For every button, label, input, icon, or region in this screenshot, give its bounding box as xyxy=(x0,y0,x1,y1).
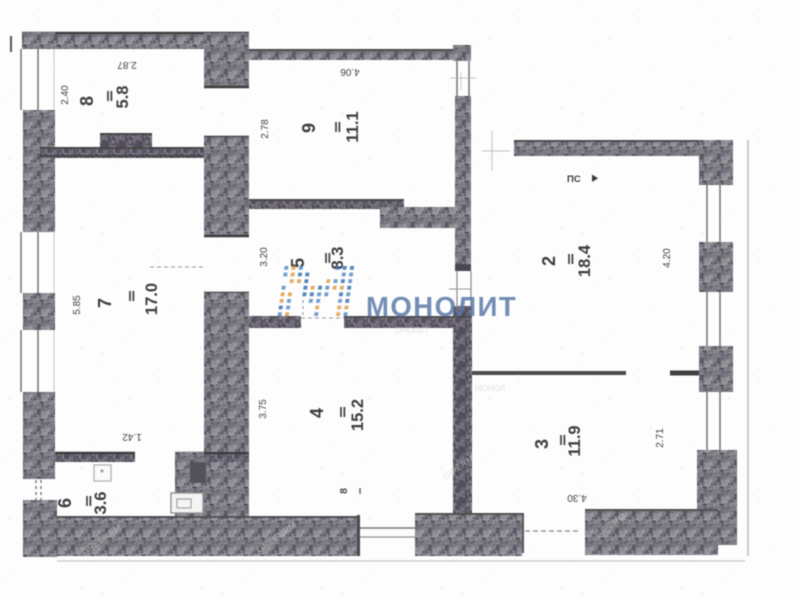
svg-text:ОНОЛИТ: ОНОЛИТ xyxy=(395,326,429,335)
svg-text:2.78: 2.78 xyxy=(260,119,271,139)
svg-text:МОНОЛИТ: МОНОЛИТ xyxy=(366,291,517,322)
svg-text:ПС: ПС xyxy=(567,174,581,185)
svg-text:4.20: 4.20 xyxy=(662,248,673,268)
svg-text:7: 7 xyxy=(95,298,115,308)
svg-text:6: 6 xyxy=(55,498,75,508)
svg-text:2: 2 xyxy=(539,256,559,266)
svg-text:17.0: 17.0 xyxy=(143,283,161,315)
svg-text:2.71: 2.71 xyxy=(655,428,666,448)
svg-text:11.1: 11.1 xyxy=(344,111,362,142)
svg-text:3: 3 xyxy=(532,439,552,449)
svg-text:4: 4 xyxy=(307,408,327,418)
svg-text:4.06: 4.06 xyxy=(340,66,360,77)
svg-text:2.87: 2.87 xyxy=(117,59,137,70)
svg-text:15.2: 15.2 xyxy=(349,399,367,431)
svg-text:11.9: 11.9 xyxy=(566,425,584,456)
svg-text:18.4: 18.4 xyxy=(576,244,594,277)
svg-text:2.40: 2.40 xyxy=(60,85,71,105)
svg-text:9: 9 xyxy=(299,123,319,133)
svg-text:8: 8 xyxy=(338,488,350,494)
svg-text:4.30: 4.30 xyxy=(567,492,587,503)
svg-text:8: 8 xyxy=(77,96,97,106)
svg-text:5.8: 5.8 xyxy=(114,86,132,109)
svg-text:3.6: 3.6 xyxy=(92,492,110,515)
svg-text:МОНОЛ: МОНОЛ xyxy=(475,384,505,393)
svg-text:5.85: 5.85 xyxy=(72,295,83,315)
svg-text:5: 5 xyxy=(288,258,308,268)
svg-text:1.42: 1.42 xyxy=(122,431,142,442)
svg-text:3.20: 3.20 xyxy=(259,247,270,267)
svg-text:3.75: 3.75 xyxy=(258,399,269,419)
